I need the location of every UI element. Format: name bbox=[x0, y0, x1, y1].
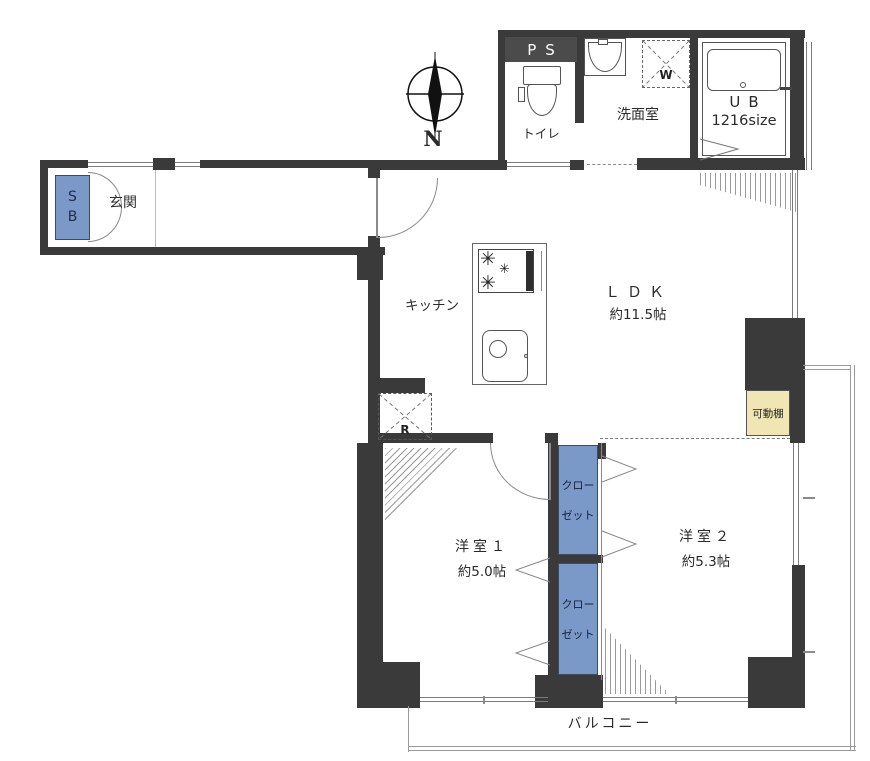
sink-knob-icon bbox=[524, 354, 528, 358]
wall-segment bbox=[378, 160, 505, 170]
window bbox=[806, 42, 812, 170]
wall-segment bbox=[357, 662, 420, 708]
balcony-rail bbox=[408, 746, 856, 751]
door-arc-ldk bbox=[378, 178, 438, 238]
washer-space: W bbox=[642, 40, 690, 88]
shoe-box-label-b: B bbox=[68, 208, 78, 228]
wall-segment bbox=[690, 38, 698, 165]
ldk-name-label: ＬＤＫ bbox=[588, 281, 688, 302]
balcony-label: バルコニー bbox=[540, 713, 680, 733]
room2-name-label: 洋室２ bbox=[652, 526, 760, 546]
closet-2-label-line1: クロー bbox=[562, 596, 595, 612]
movable-shelf: 可動棚 bbox=[746, 390, 790, 436]
wall-segment bbox=[792, 565, 805, 660]
wall-segment bbox=[498, 38, 505, 165]
wall-segment bbox=[790, 30, 804, 170]
kitchen-label: キッチン bbox=[394, 294, 470, 314]
sink-icon bbox=[482, 330, 528, 382]
balcony-divider bbox=[803, 651, 815, 653]
closet-1-label: クロー ゼット bbox=[558, 445, 598, 555]
room2-size-label: 約5.3帖 bbox=[652, 550, 760, 570]
closet-1-label-line2: ゼット bbox=[562, 507, 595, 523]
ps-label: PS bbox=[527, 41, 564, 59]
wall-segment bbox=[368, 378, 425, 393]
sink-drain-icon bbox=[489, 340, 507, 358]
wall-segment bbox=[748, 657, 805, 708]
wall-segment bbox=[548, 555, 603, 563]
entrance-step-line bbox=[155, 170, 156, 247]
washroom-door-line bbox=[587, 164, 637, 165]
counter-line bbox=[541, 251, 542, 291]
wall-segment bbox=[368, 236, 380, 255]
balcony-rail bbox=[850, 365, 855, 750]
hatch-area bbox=[605, 628, 669, 694]
closet-2-label-line2: ゼット bbox=[562, 626, 595, 642]
wall-segment bbox=[570, 160, 584, 170]
shoe-box: S B bbox=[55, 175, 90, 240]
bath-type-label: UB bbox=[704, 93, 792, 111]
burner-icon: ✳ bbox=[499, 263, 510, 276]
burner-icon: ✳ bbox=[480, 250, 496, 269]
window bbox=[175, 162, 200, 167]
wall-segment bbox=[368, 255, 380, 378]
toilet-control-icon bbox=[518, 87, 525, 102]
toilet-bowl-icon bbox=[527, 84, 557, 116]
hatch-area bbox=[385, 448, 457, 524]
wall-segment bbox=[790, 390, 805, 443]
wall-segment bbox=[368, 168, 380, 178]
wall-segment bbox=[200, 160, 380, 168]
faucet-icon bbox=[598, 39, 608, 45]
door-leaf bbox=[376, 178, 378, 238]
bath-size-label: 1216size bbox=[698, 113, 790, 129]
closet-door-mark bbox=[602, 456, 640, 484]
balcony-rail bbox=[803, 365, 850, 370]
door-leaf bbox=[549, 443, 551, 500]
room1-name-label: 洋室１ bbox=[428, 536, 536, 556]
pipe-space: PS bbox=[505, 37, 577, 62]
washer-label: W bbox=[643, 68, 689, 82]
floorplan: PS トイレ W 洗面室 bbox=[0, 0, 870, 761]
balcony-divider bbox=[803, 497, 815, 499]
wall-segment bbox=[357, 443, 383, 662]
wall-segment bbox=[153, 158, 175, 170]
washroom-label: 洗面室 bbox=[594, 104, 682, 124]
window-tick bbox=[675, 696, 677, 704]
closet-2-label: クロー ゼット bbox=[558, 563, 598, 675]
ldk-room2-boundary bbox=[600, 438, 790, 439]
closet-door-mark bbox=[602, 531, 640, 559]
burner-icon: ✳ bbox=[480, 274, 496, 293]
entrance-label: 玄関 bbox=[96, 192, 150, 212]
bathtub-drain-icon bbox=[740, 82, 746, 88]
compass-north-label: N bbox=[420, 126, 446, 151]
closet-1-label-line1: クロー bbox=[562, 477, 595, 493]
shoe-box-label-s: S bbox=[68, 188, 77, 208]
fridge-space: R bbox=[378, 393, 432, 440]
movable-shelf-label: 可動棚 bbox=[752, 406, 784, 421]
fridge-label: R bbox=[379, 423, 431, 437]
bath-faucet-icon bbox=[780, 87, 792, 90]
stove-grill bbox=[526, 251, 533, 291]
wall-segment bbox=[745, 318, 805, 390]
wall-segment bbox=[535, 675, 603, 708]
toilet-door-line bbox=[507, 162, 570, 167]
ldk-size-label: 約11.5帖 bbox=[588, 303, 688, 323]
hatch-area bbox=[700, 173, 800, 213]
room1-size-label: 約5.0帖 bbox=[428, 560, 536, 580]
wall-segment bbox=[40, 160, 48, 255]
door-arc-room1 bbox=[490, 443, 550, 500]
toilet-label: トイレ bbox=[510, 123, 572, 142]
wall-segment bbox=[40, 247, 385, 255]
front-door-line bbox=[88, 162, 153, 167]
window-tick bbox=[483, 696, 485, 704]
window bbox=[793, 443, 799, 565]
bath-door-mark bbox=[700, 138, 740, 162]
toilet-tank-icon bbox=[523, 66, 561, 85]
closet-door-mark bbox=[514, 641, 552, 667]
